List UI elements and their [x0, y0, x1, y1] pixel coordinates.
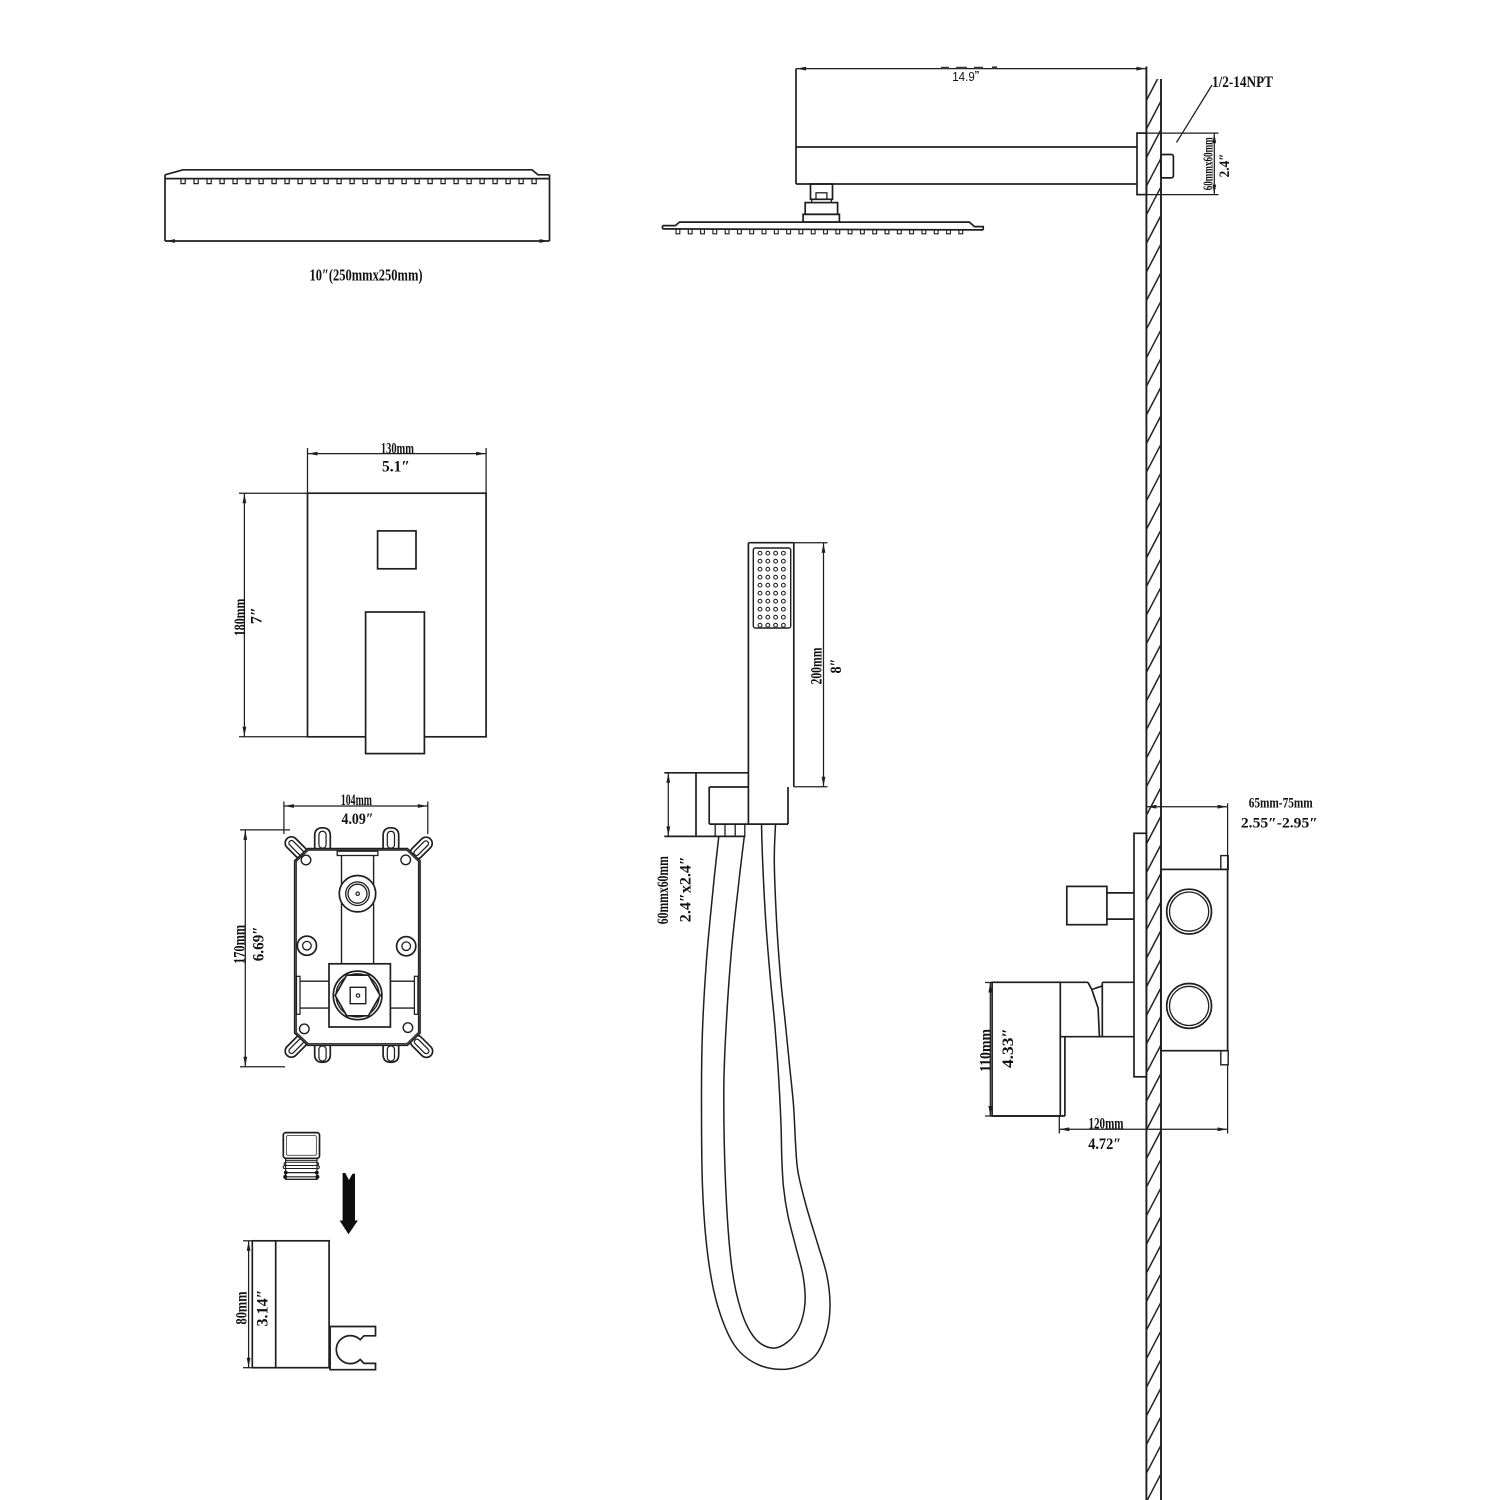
svg-text:4.72″: 4.72″ [1088, 1136, 1121, 1153]
svg-text:7″: 7″ [248, 607, 265, 624]
svg-text:60mmx60mm: 60mmx60mm [655, 856, 672, 924]
svg-text:104mm: 104mm [341, 792, 372, 809]
svg-text:8″: 8″ [828, 659, 845, 674]
svg-text:”: ” [974, 69, 979, 81]
svg-text:5.1″: 5.1″ [382, 458, 410, 475]
svg-text:120mm: 120mm [1089, 1116, 1124, 1133]
svg-text:3.14″: 3.14″ [254, 1290, 271, 1327]
svg-text:180mm: 180mm [232, 598, 249, 636]
svg-text:2.55″-2.95″: 2.55″-2.95″ [1241, 814, 1318, 831]
svg-text:170mm: 170mm [231, 924, 248, 964]
svg-text:2.4″: 2.4″ [1217, 153, 1233, 177]
svg-text:6.69″: 6.69″ [250, 926, 267, 961]
svg-text:4.33″: 4.33″ [1000, 1028, 1017, 1068]
svg-text:10″(250mmx250mm): 10″(250mmx250mm) [310, 265, 423, 284]
svg-text:1/2-14NPT: 1/2-14NPT [1212, 74, 1274, 91]
svg-text:2.4″x2.4″: 2.4″x2.4″ [677, 856, 694, 922]
svg-text:14.9: 14.9 [952, 69, 975, 84]
svg-text:80mm: 80mm [234, 1291, 251, 1325]
svg-text:4.09″: 4.09″ [342, 811, 374, 828]
svg-text:130mm: 130mm [381, 441, 414, 458]
svg-text:200mm: 200mm [809, 647, 826, 684]
svg-text:60mmx60mm: 60mmx60mm [1200, 137, 1215, 191]
svg-text:65mm-75mm: 65mm-75mm [1249, 796, 1313, 812]
svg-text:110mm: 110mm [978, 1028, 995, 1072]
